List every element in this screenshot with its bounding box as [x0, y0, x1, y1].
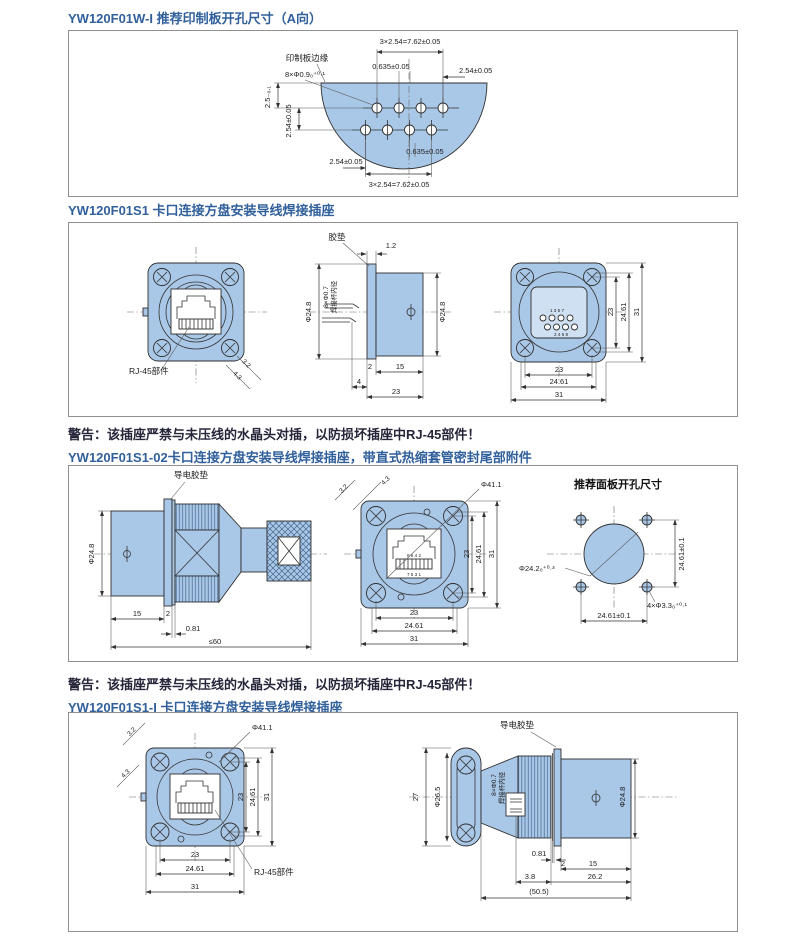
- dim-4: 4: [357, 377, 361, 386]
- dim-v31: 31: [262, 793, 271, 801]
- socket-three-view-drawing: RJ-45部件 3.2 4.3 胶垫 1.2: [69, 223, 737, 416]
- pin-numbers-bottom: 7 5 3 1: [407, 572, 421, 577]
- dim-v2461: 24.61: [619, 303, 628, 322]
- dim-h23: 23: [191, 850, 199, 859]
- label-conductive-gasket: 导电胶垫: [174, 470, 209, 480]
- panel-socket-tail-views: Φ41.1 3.2 4.3 23 24.61 31: [68, 712, 738, 932]
- dim-h2461: 24.61: [186, 864, 205, 873]
- dim-v2461: 24.61±0.1: [677, 537, 686, 570]
- dim-h2461: 24.61±0.1: [597, 611, 630, 620]
- dim-v31: 31: [487, 550, 496, 558]
- dim-d248: Φ24.8: [618, 787, 627, 808]
- dim-pitch-bottom: 3×2.54=7.62±0.05: [369, 180, 430, 189]
- dim-holes: 8×Φ0.9₀⁺⁰·¹: [285, 70, 326, 79]
- section2-title: YW120F01S1 卡口连接方盘安装导线焊接插座: [68, 200, 335, 219]
- section1-title: YW120F01W-I 推荐印制板开孔尺寸（A向）: [68, 8, 322, 27]
- dim-15: 15: [133, 609, 141, 618]
- label-conductive-gasket: 导电胶垫: [500, 720, 535, 730]
- dim-2: 2: [166, 609, 170, 618]
- dim-d248-right: Φ24.8: [438, 302, 447, 323]
- dim-27: 27: [411, 793, 420, 801]
- dim-254-bottom: 2.54±0.05: [329, 157, 362, 166]
- label-gasket: 胶垫: [328, 232, 346, 242]
- diag-dim-b: 4.3: [380, 475, 392, 487]
- dim-254-top: 2.54±0.05: [459, 66, 492, 75]
- dim-d265: Φ26.5: [433, 787, 442, 808]
- dim-v2461: 24.61: [474, 545, 483, 564]
- panel-plug-views: 导电胶垫 Φ24.8 15 2 0.81 ≤60: [68, 465, 738, 662]
- front-view: Φ41.1 3.2 4.3 23 24.61 31: [117, 723, 294, 895]
- front-view: 8 6 4 2 7 5 3 1 Φ41.1 3.2 4.3 23 24.61 3…: [335, 475, 502, 647]
- side-view: 导电胶垫 Φ24.8 15 2 0.81 ≤60: [87, 470, 327, 650]
- diag-dim-a: 3.2: [240, 358, 252, 370]
- panel-socket-views: RJ-45部件 3.2 4.3 胶垫 1.2: [68, 222, 738, 417]
- panel-pcb-holes: 3×2.54=7.62±0.05 印制板边缘 0.635±0.05 2.54±0…: [68, 30, 738, 197]
- dim-v31: 31: [632, 308, 641, 316]
- socket-tail-drawing: Φ41.1 3.2 4.3 23 24.61 31: [69, 713, 737, 931]
- dim-2: 2: [561, 859, 565, 868]
- pin-numbers-bottom: 2 4 6 8: [554, 332, 568, 337]
- dim-25-left: 2.5₋₀.₁: [263, 85, 272, 108]
- dim-v2461: 24.61: [248, 788, 257, 807]
- diag-dim-b: 4.3: [120, 768, 132, 780]
- dim-pitch-top: 3×2.54=7.62±0.05: [380, 37, 441, 46]
- dim-h31: 31: [191, 882, 199, 891]
- dim-262: 26.2: [588, 872, 603, 881]
- dim-15: 15: [589, 859, 597, 868]
- dim-v23: 23: [462, 550, 471, 558]
- dim-d411: Φ41.1: [252, 723, 273, 732]
- datasheet-page: YW120F01W-I 推荐印制板开孔尺寸（A向）: [0, 0, 800, 940]
- dim-23: 23: [392, 387, 400, 396]
- dim-d248-left: Φ24.8: [304, 302, 313, 323]
- dim-v23: 23: [236, 793, 245, 801]
- dim-2: 2: [368, 362, 372, 371]
- side-view: 胶垫 1.2 Φ24.8 8×Φ0.7 焊接杯内径 Φ24.8 2 15: [304, 232, 451, 399]
- panel-cutout-view: 推荐面板开孔尺寸 Φ24.2₀⁺⁰·³ 24.61±0.1 4×Φ3.3₀⁺⁰·…: [519, 477, 688, 624]
- dim-0635-top: 0.635±0.05: [372, 62, 409, 71]
- label-solder-cup: 焊接杯内径: [329, 280, 338, 313]
- dim-1-2: 1.2: [386, 241, 396, 250]
- pin-numbers-top: 1 3 5 7: [550, 308, 564, 313]
- dim-h2461: 24.61: [405, 621, 424, 630]
- front-view: RJ-45部件 3.2 4.3: [127, 247, 267, 389]
- diag-dim-a: 3.2: [126, 726, 138, 738]
- diag-dim-a: 3.2: [338, 483, 350, 495]
- label-pcb-edge: 印制板边缘: [286, 53, 329, 63]
- dim-d242: Φ24.2₀⁺⁰·³: [519, 564, 555, 573]
- pin-numbers-top: 8 6 4 2: [407, 553, 421, 558]
- pcb-hole-drawing: 3×2.54=7.62±0.05 印制板边缘 0.635±0.05 2.54±0…: [69, 31, 737, 196]
- dim-h31: 31: [410, 634, 418, 643]
- plug-three-view-drawing: 导电胶垫 Φ24.8 15 2 0.81 ≤60: [69, 466, 737, 661]
- rj45-jack: [170, 774, 220, 819]
- rj45-jack: [171, 289, 221, 334]
- dim-h2461: 24.61: [550, 377, 569, 386]
- warning-text-1: 警告：该插座严禁与未压线的水晶头对插，以防损坏插座中RJ-45部件！: [68, 424, 480, 443]
- label-rj45: RJ-45部件: [254, 867, 294, 877]
- dim-h31: 31: [555, 390, 563, 399]
- label-solder-cup: 焊接杯内径: [497, 771, 506, 804]
- dim-081: 0.81: [532, 849, 547, 858]
- dim-8x07: 8×Φ0.7: [491, 774, 498, 796]
- side-view: 导电胶垫 8×Φ0.7 焊接杯内径 27 Φ26.5 Φ24.8 0.81 2 …: [409, 720, 677, 901]
- dim-cutout-holes: 4×Φ3.3₀⁺⁰·¹: [647, 601, 688, 610]
- dim-0635-bottom: 0.635±0.05: [406, 147, 443, 156]
- dim-h23: 23: [410, 608, 418, 617]
- dim-38: 3.8: [525, 872, 535, 881]
- dim-h23: 23: [555, 365, 563, 374]
- rear-view: 1 3 5 7 2 4 6 8 23 24.61 31 23 24.61: [494, 248, 646, 403]
- cutout-title: 推荐面板开孔尺寸: [574, 477, 662, 491]
- warning-text-2: 警告：该插座严禁与未压线的水晶头对插，以防损坏插座中RJ-45部件！: [68, 674, 480, 693]
- dim-v23: 23: [606, 308, 615, 316]
- solder-cups: [506, 793, 525, 816]
- dim-505: (50.5): [529, 887, 549, 896]
- dim-le60: ≤60: [209, 637, 221, 646]
- dim-d248: Φ24.8: [87, 544, 96, 565]
- section3-title: YW120F01S1-02卡口连接方盘安装导线焊接插座，带直式热缩套管密封尾部附…: [68, 447, 532, 466]
- dim-d411: Φ41.1: [481, 480, 502, 489]
- dim-254-left: 2.54±0.05: [284, 104, 293, 137]
- dim-081: 0.81: [186, 624, 201, 633]
- dim-15: 15: [396, 362, 404, 371]
- dim-8x07: 8×Φ0.7: [323, 286, 330, 308]
